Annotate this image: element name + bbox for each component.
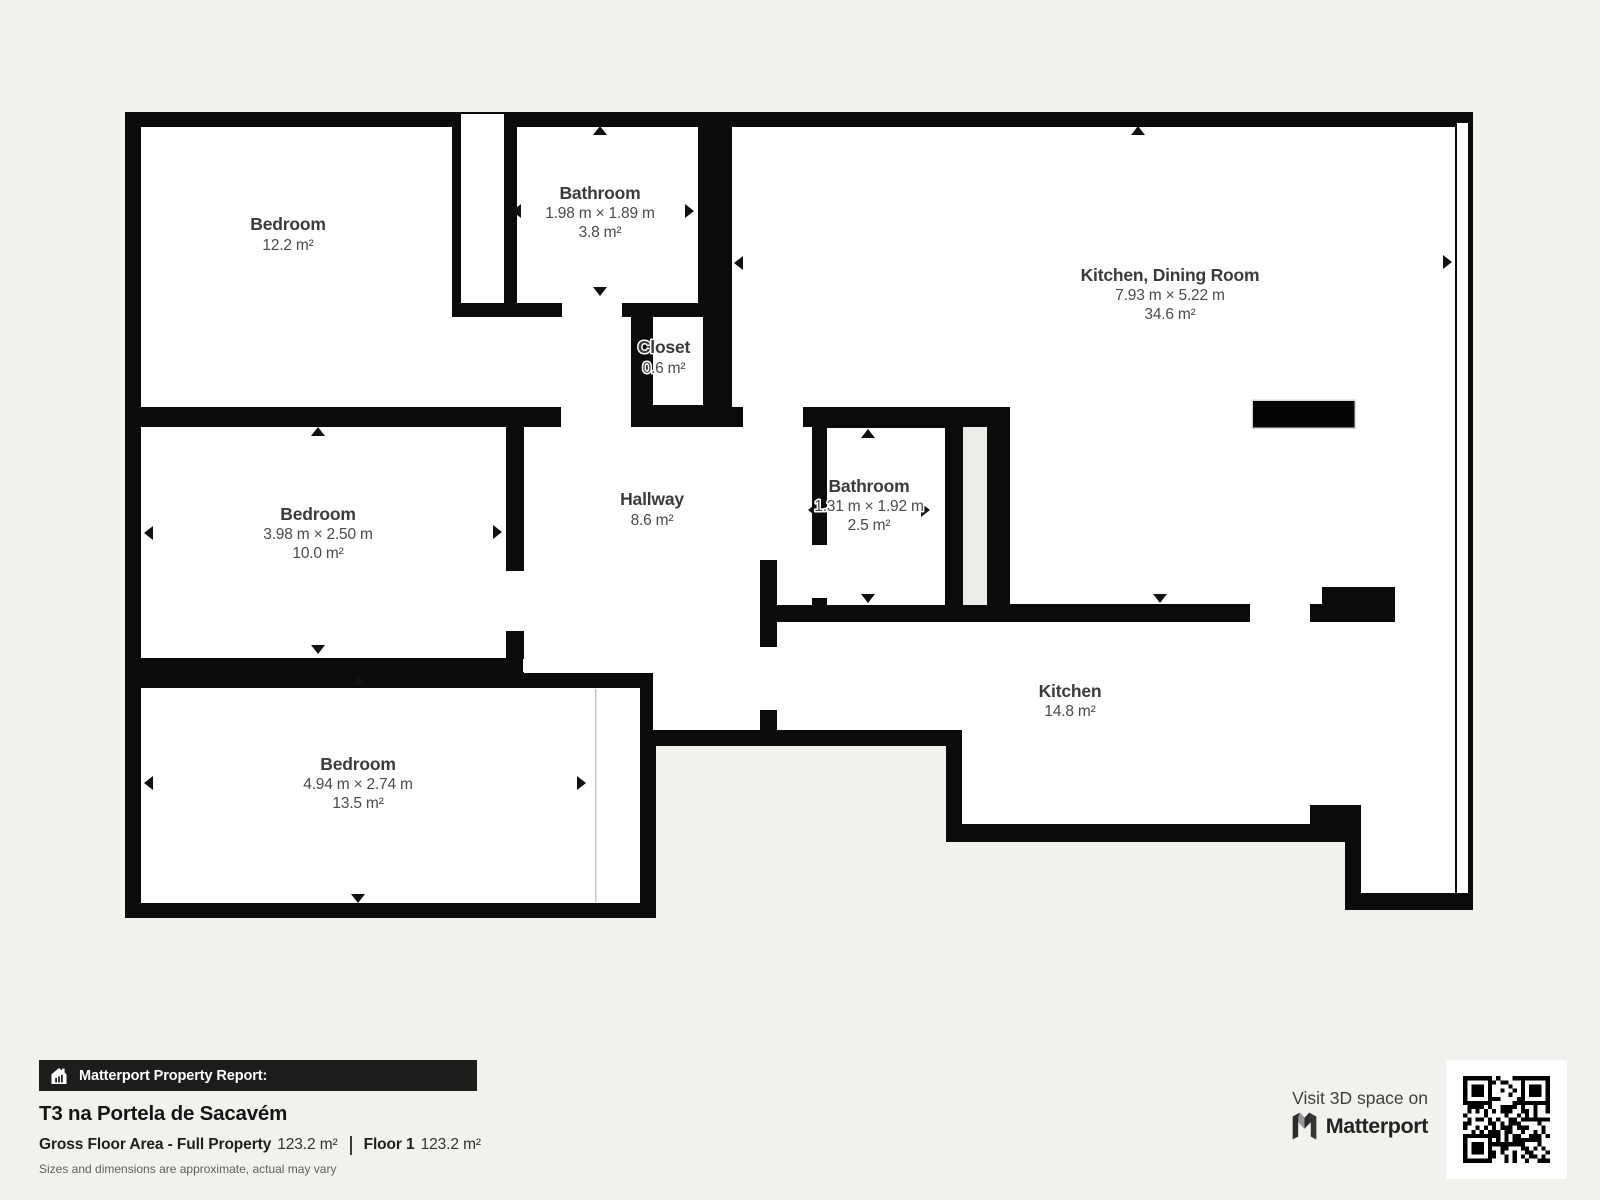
door-kitchendining-hallway xyxy=(743,402,803,432)
room-name: Bedroom xyxy=(280,504,355,524)
matterport-wordmark: Matterport xyxy=(1326,1114,1428,1139)
door-hallway-kitchen xyxy=(757,647,779,710)
floor-label: Floor 1 xyxy=(364,1136,415,1154)
door-bedroom-3 xyxy=(523,659,597,672)
room-name: Bathroom xyxy=(559,183,640,203)
report-banner-label: Matterport Property Report: xyxy=(79,1068,267,1084)
room-dimensions: 1.31 m × 1.92 m xyxy=(814,498,923,515)
door-bathroom-1 xyxy=(562,298,622,324)
window-right-facade xyxy=(1457,123,1468,893)
wall-stub-kitchen xyxy=(1322,587,1395,622)
room-label-kitchen: Kitchen 14.8 m² xyxy=(1039,681,1102,720)
matterport-floor-plan-report: { "report_banner": { "label": "Matterpor… xyxy=(0,0,1600,1200)
report-banner: Matterport Property Report: xyxy=(39,1060,477,1091)
room-dimensions: 7.93 m × 5.22 m xyxy=(1115,287,1224,304)
duct-shaft xyxy=(963,427,987,605)
property-title: T3 na Portela de Sacavém xyxy=(39,1102,287,1126)
room-area: 2.5 m² xyxy=(848,517,891,534)
visit-3d-text: Visit 3D space on xyxy=(1200,1088,1428,1109)
room-name: Kitchen, Dining Room xyxy=(1081,265,1260,285)
room-area: 13.5 m² xyxy=(332,795,383,812)
room-name: Kitchen xyxy=(1039,681,1102,701)
room-name: Closet xyxy=(638,337,691,357)
room-area: 3.8 m² xyxy=(579,224,622,241)
room-dimensions: 1.98 m × 1.89 m xyxy=(545,205,654,222)
room-area: 0.6 m² xyxy=(643,360,686,377)
matterport-m-icon xyxy=(1291,1111,1318,1141)
door-bedroom-1-hallway xyxy=(561,402,631,432)
door-bathroom-2 xyxy=(810,545,829,598)
room-name: Hallway xyxy=(620,489,684,509)
room-name: Bedroom xyxy=(250,214,325,234)
room-name: Bathroom xyxy=(828,476,909,496)
floor-value: 123.2 m² xyxy=(421,1136,481,1154)
shaft-niche xyxy=(461,114,504,303)
room-area: 34.6 m² xyxy=(1144,306,1195,323)
room-dimensions: 3.98 m × 2.50 m xyxy=(263,526,372,543)
room-shape-bedroom-3 xyxy=(141,688,640,903)
gfa-label: Gross Floor Area - Full Property xyxy=(39,1136,271,1154)
room-dimensions: 4.94 m × 2.74 m xyxy=(303,776,412,793)
room-area: 8.6 m² xyxy=(631,512,674,529)
room-area: 10.0 m² xyxy=(292,545,343,562)
gfa-value: 123.2 m² xyxy=(277,1136,337,1154)
room-name: Bedroom xyxy=(320,754,395,774)
disclaimer-text: Sizes and dimensions are approximate, ac… xyxy=(39,1162,336,1176)
house-icon xyxy=(49,1066,69,1086)
floor-plan: Bedroom 12.2 m² Bathroom 1.98 m × 1.89 m… xyxy=(0,0,1600,1030)
divider xyxy=(350,1136,352,1155)
door-bedroom-2 xyxy=(500,571,526,631)
matterport-logo: Matterport xyxy=(1200,1111,1428,1141)
qr-code xyxy=(1446,1060,1567,1179)
gross-floor-area-row: Gross Floor Area - Full Property 123.2 m… xyxy=(39,1134,481,1156)
room-area: 12.2 m² xyxy=(262,237,313,254)
room-area: 14.8 m² xyxy=(1044,703,1095,720)
kitchen-island-counter xyxy=(1252,400,1355,428)
door-kitchendining-kitchen xyxy=(1250,600,1310,625)
